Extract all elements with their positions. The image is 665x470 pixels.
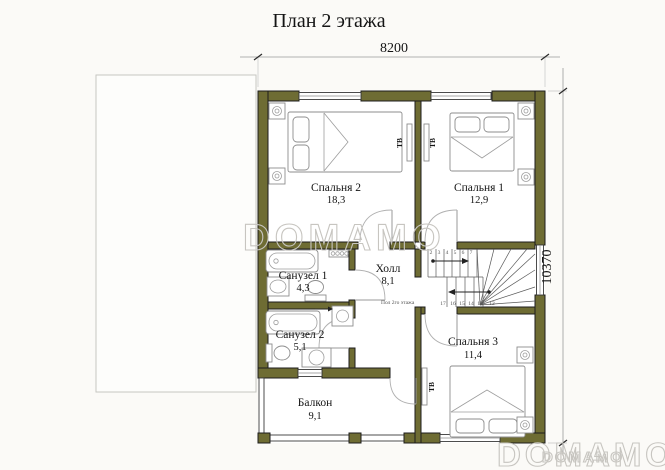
room-label-balcony: Балкон xyxy=(298,397,332,409)
pillow-icon xyxy=(293,145,309,170)
room-area-bedroom2: 18,3 xyxy=(327,195,345,206)
pillow-icon xyxy=(456,419,484,433)
room-label-bedroom1: Спальня 1 xyxy=(454,182,504,194)
page-title: План 2 этажа xyxy=(272,10,385,32)
floor-plan-drawing: План 2 этажа 8200 10370 Спальня 2 18,3 С… xyxy=(0,0,665,470)
floor-plan-page: План 2 этажа 8200 10370 Спальня 2 18,3 С… xyxy=(0,0,665,470)
bed-bedroom1-icon xyxy=(450,113,514,171)
room-area-balcony: 9,1 xyxy=(308,411,321,422)
pillow-icon xyxy=(293,117,309,142)
svg-text:7: 7 xyxy=(470,250,473,256)
svg-text:12: 12 xyxy=(489,301,495,307)
svg-text:15: 15 xyxy=(459,301,465,307)
tv-icon xyxy=(407,124,412,161)
lower-roof-outline xyxy=(96,75,256,392)
svg-text:14: 14 xyxy=(468,301,474,307)
room-area-bedroom1: 12,9 xyxy=(470,195,488,206)
svg-text:4: 4 xyxy=(446,250,449,256)
dimension-top: 8200 xyxy=(380,41,408,56)
room-label-bathroom1: Санузел 1 xyxy=(279,270,328,282)
room-label-hall: Холл xyxy=(376,263,401,275)
stair-note: Пол 2го этажа xyxy=(381,300,415,306)
svg-text:13: 13 xyxy=(477,301,483,307)
room-area-bedroom3: 11,4 xyxy=(464,350,483,361)
room-area-bathroom1: 4,3 xyxy=(296,283,309,294)
svg-text:17: 17 xyxy=(440,301,446,307)
room-label-bedroom3: Спальня 3 xyxy=(448,336,498,348)
tv-label: ТВ xyxy=(395,138,404,148)
wall-balcony-divider xyxy=(415,307,421,443)
dimension-right: 10370 xyxy=(540,250,555,285)
svg-text:16: 16 xyxy=(450,301,456,307)
watermark-center: DOMAMO xyxy=(243,217,446,258)
svg-text:5: 5 xyxy=(454,250,457,256)
toilet-icon xyxy=(266,344,290,362)
room-area-bathroom2: 5,1 xyxy=(293,342,306,353)
room-area-hall: 8,1 xyxy=(381,276,394,287)
bed-bedroom2-icon xyxy=(288,112,402,172)
watermark-bottom-right: DOMAMO xyxy=(497,436,665,470)
pillow-icon xyxy=(455,117,480,132)
bed-bedroom3-icon xyxy=(450,366,525,437)
tv-label: ТВ xyxy=(427,382,436,392)
svg-text:6: 6 xyxy=(462,250,465,256)
tv-label: ТВ xyxy=(428,138,437,148)
pillow-icon xyxy=(489,419,517,433)
pillow-icon xyxy=(484,117,509,132)
room-label-bathroom2: Санузел 2 xyxy=(276,329,325,341)
room-label-bedroom2: Спальня 2 xyxy=(311,182,361,194)
